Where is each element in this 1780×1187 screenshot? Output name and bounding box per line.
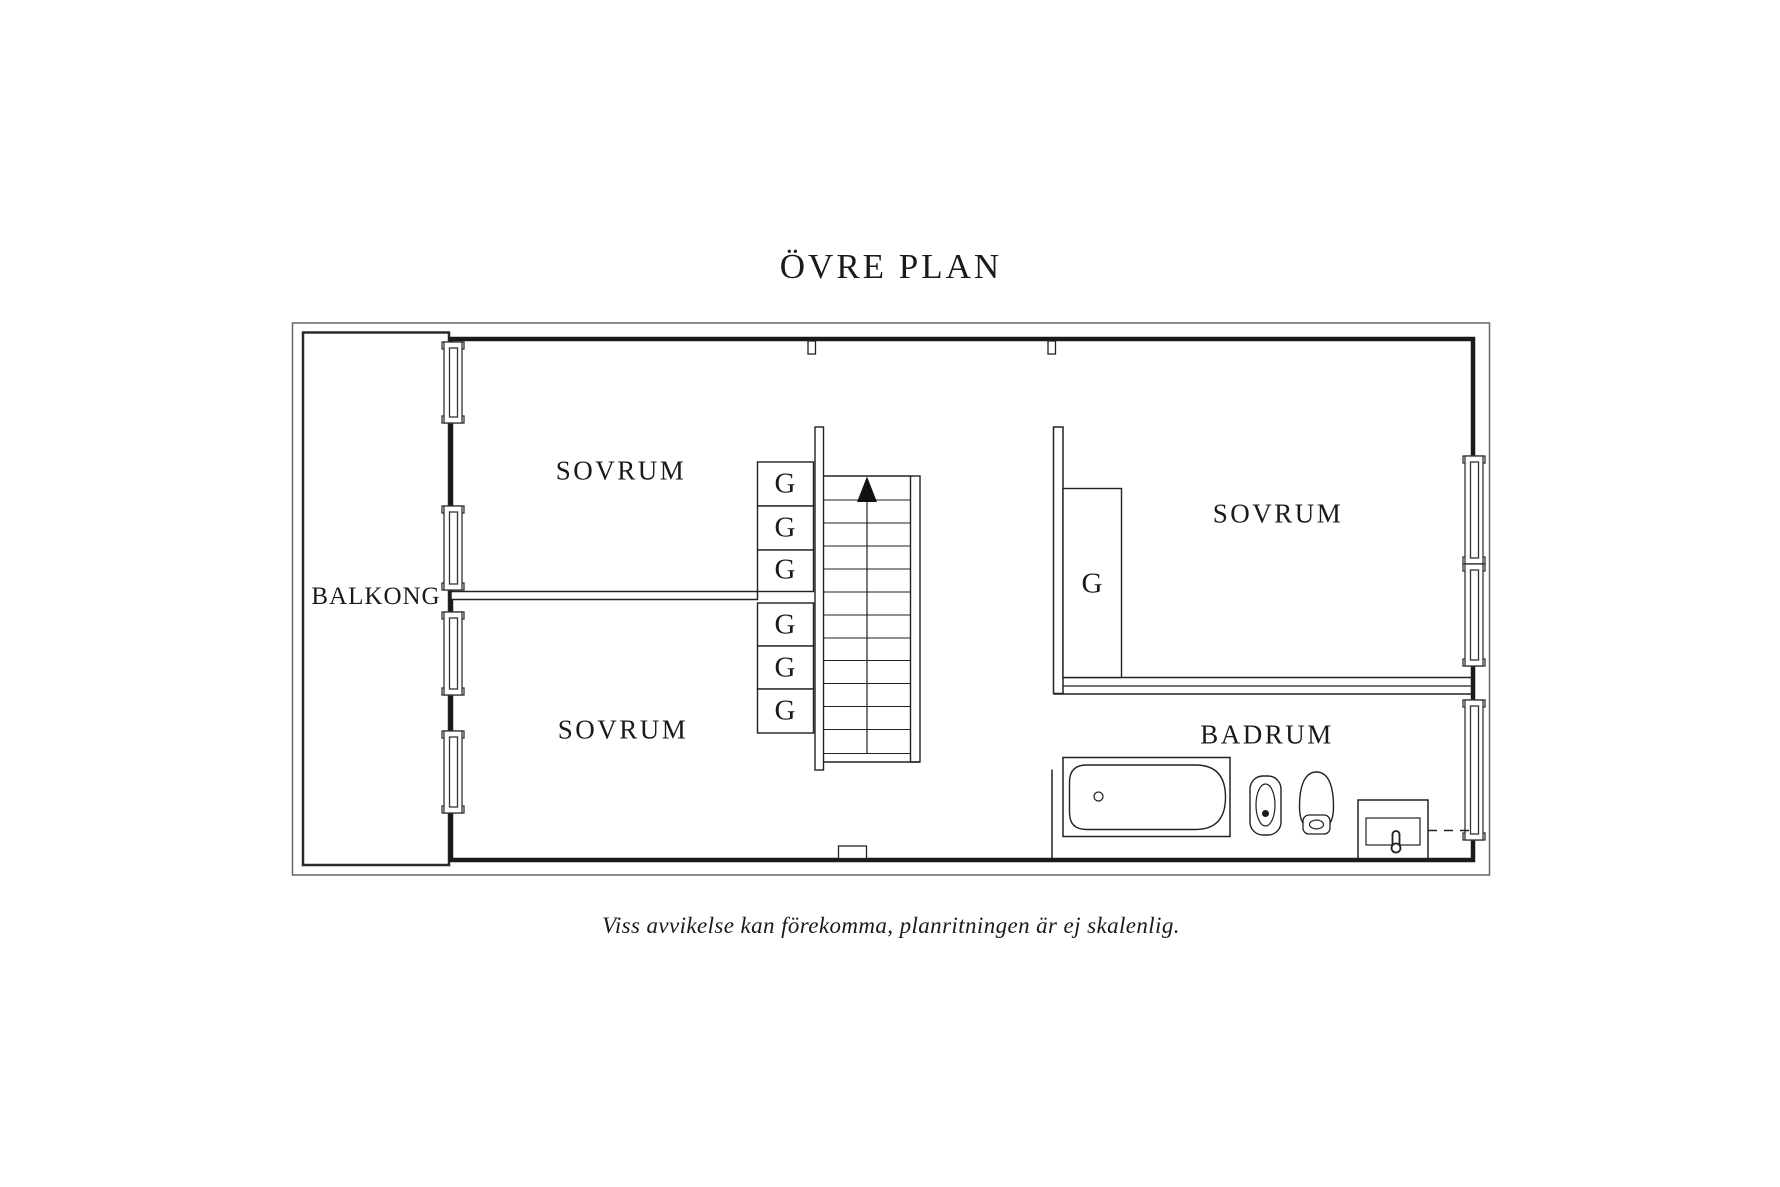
window-left-3: [442, 612, 464, 695]
wardrobe-label-5: G: [775, 652, 796, 685]
wall-stub-top-left: [808, 341, 816, 354]
washbasin: [1358, 800, 1428, 859]
room-label-bedroom-right: SOVRUM: [1213, 499, 1344, 530]
page-title: ÖVRE PLAN: [780, 247, 1002, 287]
room-label-bedroom-top-left: SOVRUM: [556, 456, 687, 487]
room-label-balcony: BALKONG: [311, 583, 440, 611]
floor-plan-page: ÖVRE PLAN BALKONG SOVRUM SOVRUM SOVRUM B…: [0, 0, 1780, 1187]
window-right-bathroom: [1463, 700, 1485, 840]
wardrobe-label-4: G: [775, 609, 796, 642]
bidet: [1250, 776, 1281, 835]
wardrobe-label-1: G: [775, 468, 796, 501]
toilet: [1300, 772, 1334, 834]
bathroom-wall: [1054, 678, 1474, 695]
wall-stub-bottom: [839, 846, 867, 859]
window-right-1: [1463, 456, 1485, 564]
wardrobe-label-3: G: [775, 554, 796, 587]
bedroom-divider-wall: [451, 592, 758, 600]
stair-right-stringer: [911, 476, 921, 762]
bathtub: [1063, 758, 1230, 837]
room-label-bathroom: BADRUM: [1200, 720, 1334, 751]
window-left-2: [442, 506, 464, 590]
disclaimer-caption: Viss avvikelse kan förekomma, planritnin…: [602, 913, 1180, 939]
window-right-2: [1463, 564, 1485, 666]
hall-wall: [1054, 427, 1064, 694]
wall-stub-top-right: [1048, 341, 1056, 354]
wardrobe-column: [758, 462, 814, 733]
window-left-4: [442, 731, 464, 813]
room-label-bedroom-bottom-left: SOVRUM: [558, 715, 689, 746]
wardrobe-label-7: G: [1082, 568, 1103, 601]
window-left-1: [442, 342, 464, 423]
stair-left-stringer: [815, 427, 824, 770]
wardrobe-label-6: G: [775, 695, 796, 728]
staircase: [815, 427, 920, 770]
stair-up-arrow-icon: [857, 477, 877, 503]
floor-plan-drawing: [0, 0, 1780, 1187]
wardrobe-label-2: G: [775, 512, 796, 545]
